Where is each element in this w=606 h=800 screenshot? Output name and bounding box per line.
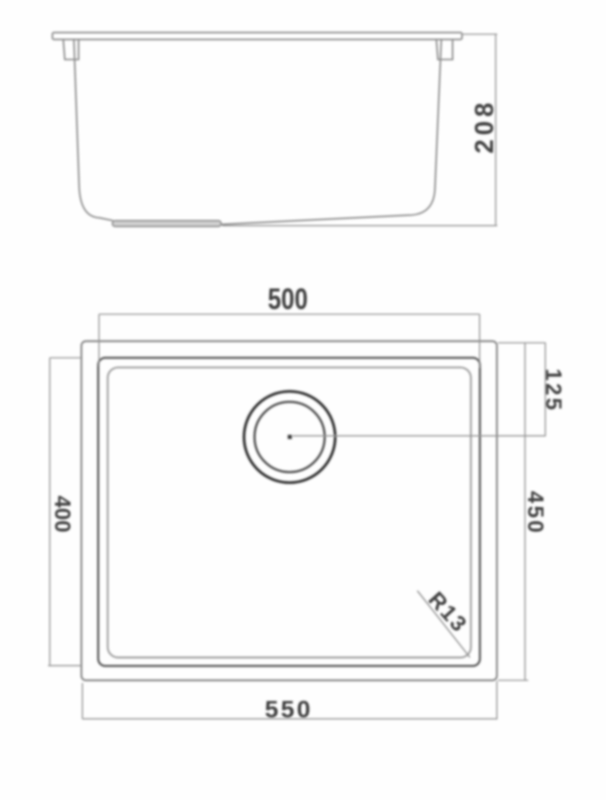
svg-text:208: 208 (471, 103, 499, 154)
svg-text:500: 500 (268, 283, 308, 316)
svg-text:125: 125 (541, 368, 566, 410)
svg-text:450: 450 (523, 491, 548, 533)
svg-text:400: 400 (50, 496, 75, 533)
svg-text:550: 550 (265, 697, 311, 724)
svg-text:R13: R13 (424, 587, 472, 636)
